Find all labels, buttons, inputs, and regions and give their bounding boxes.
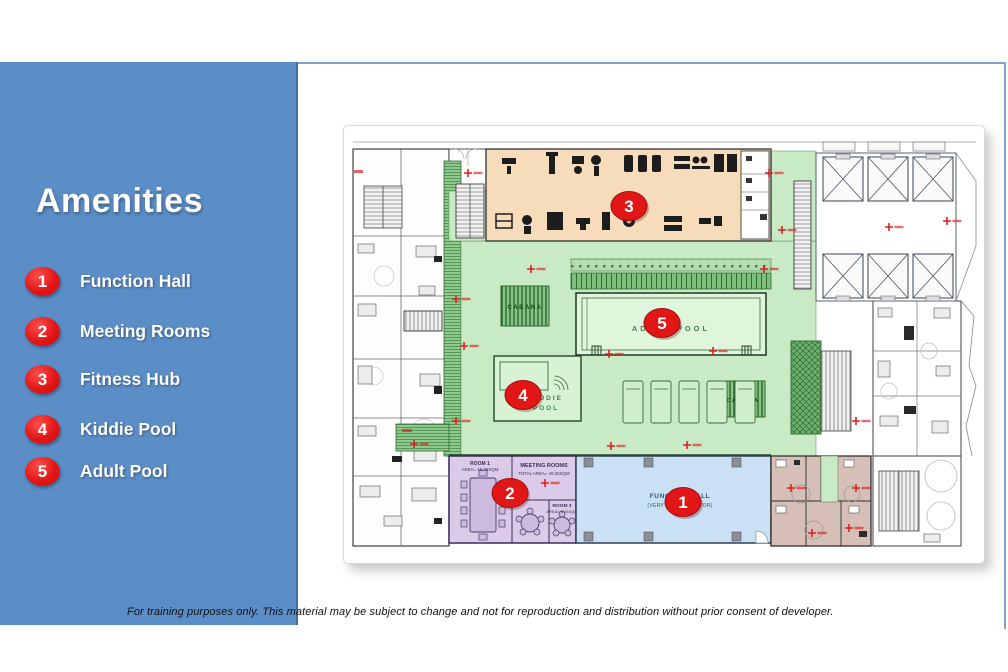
meeting-rooms-label: MEETING ROOMS — [520, 463, 568, 469]
planter-bottom-left — [396, 424, 449, 451]
floor-plan-image: ADULT POOL CABANA CABANA KIDDIE POOL — [343, 125, 985, 564]
trellis-right — [791, 341, 821, 434]
legend-label-3: Fitness Hub — [80, 369, 180, 390]
legend-badge-3: 3 — [25, 365, 60, 394]
cabana-left: CABANA — [501, 286, 549, 326]
legend-item-function-hall: 1 Function Hall — [25, 267, 191, 296]
legend-label-5: Adult Pool — [80, 461, 167, 482]
trellis-band — [571, 273, 771, 289]
footer-disclaimer: For training purposes only. This materia… — [127, 606, 867, 618]
page-title: Amenities — [36, 182, 203, 221]
svg-text:4: 4 — [518, 386, 528, 405]
lounge-chairs — [623, 381, 755, 423]
svg-text:3: 3 — [624, 197, 633, 216]
cabana-left-label: CABANA — [508, 305, 543, 311]
legend-badge-4: 4 — [25, 415, 60, 444]
legend-badge-5: 5 — [25, 457, 60, 486]
legend-label-1: Function Hall — [80, 271, 191, 292]
legend-item-meeting-rooms: 2 Meeting Rooms — [25, 317, 210, 346]
meeting-rooms-area: TOTAL AREA= 49.26SQM — [518, 471, 570, 476]
legend-item-adult-pool: 5 Adult Pool — [25, 457, 167, 486]
svg-text:5: 5 — [657, 314, 666, 333]
legend-badge-2: 2 — [25, 317, 60, 346]
stair-block-bottom-right — [873, 456, 961, 546]
svg-text:2: 2 — [505, 484, 514, 503]
legend-item-kiddie-pool: 4 Kiddie Pool — [25, 415, 176, 444]
slide-canvas: Amenities 1 Function Hall 2 Meeting Room… — [0, 0, 1008, 672]
legend-label-2: Meeting Rooms — [80, 321, 210, 342]
residential-wing-left — [353, 149, 449, 546]
deck-dot-band — [571, 259, 771, 271]
legend-item-fitness-hub: 3 Fitness Hub — [25, 365, 180, 394]
residential-wing-right — [873, 301, 976, 456]
sidebar: Amenities 1 Function Hall 2 Meeting Room… — [0, 62, 298, 625]
floor-plan-drawing: ADULT POOL CABANA CABANA KIDDIE POOL — [344, 126, 984, 563]
svg-text:1: 1 — [678, 493, 687, 512]
legend-badge-1: 1 — [25, 267, 60, 296]
elevator-bank — [816, 142, 976, 301]
stairs-right-core — [794, 181, 811, 289]
legend-label-4: Kiddie Pool — [80, 419, 176, 440]
room1-area: AREA= 15.26SQM — [462, 467, 499, 472]
room3-area: AREA= 8.26SQM — [546, 509, 577, 514]
stairs-deck-right — [821, 351, 851, 431]
